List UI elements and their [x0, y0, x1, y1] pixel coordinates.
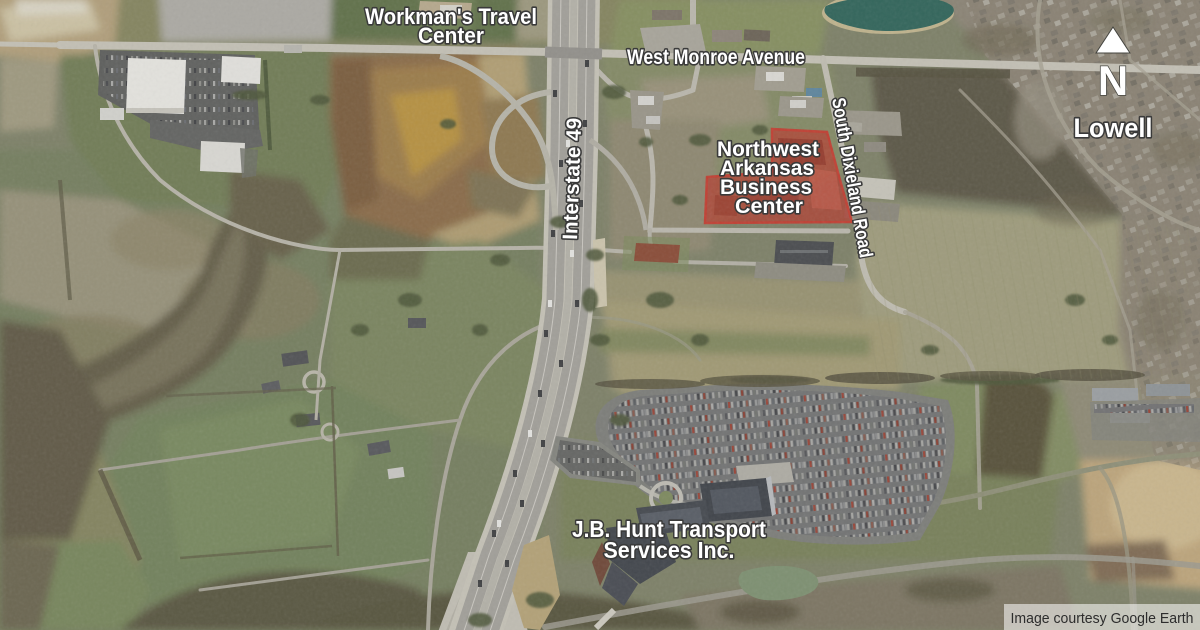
svg-text:West Monroe Avenue: West Monroe Avenue — [627, 46, 805, 69]
svg-text:Center: Center — [735, 195, 803, 218]
svg-text:Services Inc.: Services Inc. — [604, 537, 735, 563]
svg-text:Interstate 49: Interstate 49 — [559, 117, 586, 240]
svg-text:Lowell: Lowell — [1074, 113, 1153, 143]
svg-text:N: N — [1098, 57, 1128, 104]
svg-text:Center: Center — [418, 23, 484, 48]
svg-text:Image courtesy Google Earth: Image courtesy Google Earth — [1011, 610, 1194, 627]
